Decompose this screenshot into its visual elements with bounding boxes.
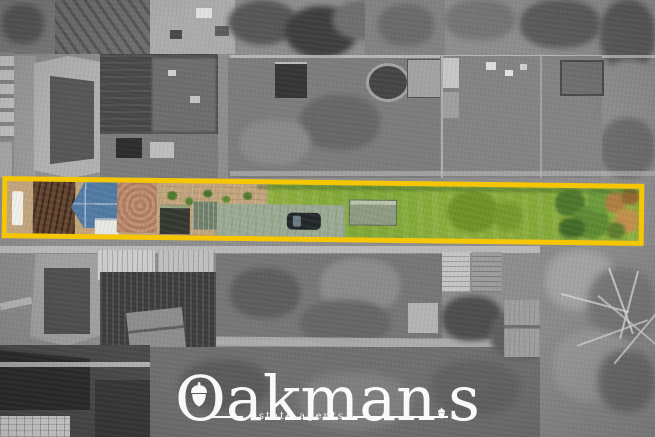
tagline-rule-left	[207, 416, 243, 418]
patio-object	[520, 64, 527, 70]
watermark-logo: Oakmans estate agents	[0, 368, 655, 430]
garden-object	[190, 96, 200, 103]
boundary-wall	[230, 171, 655, 176]
brand-letter-o: O	[175, 362, 226, 435]
garden-panel	[443, 92, 459, 118]
garden-patch	[152, 58, 216, 132]
garden-panel	[443, 58, 459, 88]
tree-canopy	[600, 118, 655, 178]
driveway	[14, 56, 36, 178]
aerial-photo: Oakmans estate agents	[0, 0, 655, 437]
corrugated-roof	[158, 250, 214, 272]
tagline: estate agents	[251, 412, 345, 422]
shed	[275, 62, 307, 98]
building-facade	[0, 52, 14, 140]
acorn-icon	[437, 362, 446, 435]
garden-object	[168, 70, 176, 76]
vegetation	[230, 268, 300, 318]
yard-object	[196, 8, 212, 18]
patio-object	[486, 62, 496, 70]
acorn-icon	[189, 381, 209, 409]
brand-text: akman	[226, 362, 436, 435]
tree-shadow	[2, 4, 44, 44]
greenhouse	[472, 252, 502, 292]
yard-object	[170, 30, 182, 39]
shed	[560, 60, 604, 96]
fence-line	[540, 56, 542, 178]
house-roof	[55, 0, 150, 54]
tagline-row: estate agents	[0, 412, 655, 422]
roof-slope	[50, 74, 94, 166]
tree-canopy	[520, 0, 600, 48]
patio-object	[505, 70, 513, 76]
shed	[407, 302, 439, 334]
property-boundary-highlight	[2, 176, 645, 246]
greenhouse	[442, 252, 470, 292]
yard-object	[215, 26, 229, 36]
trampoline	[366, 63, 410, 102]
roof-slope	[44, 268, 90, 334]
tree-canopy	[378, 4, 434, 46]
vegetation	[300, 95, 380, 150]
tagline-rule-right	[353, 416, 448, 418]
vegetation	[240, 120, 310, 165]
photo-grain	[7, 181, 640, 241]
shed	[407, 59, 444, 98]
wall-line	[0, 362, 150, 367]
shed	[116, 138, 142, 158]
building-facade	[0, 142, 12, 178]
shed	[150, 142, 174, 158]
tree-canopy	[603, 60, 655, 120]
brand-text: s	[448, 362, 480, 435]
tree-canopy	[445, 0, 515, 40]
